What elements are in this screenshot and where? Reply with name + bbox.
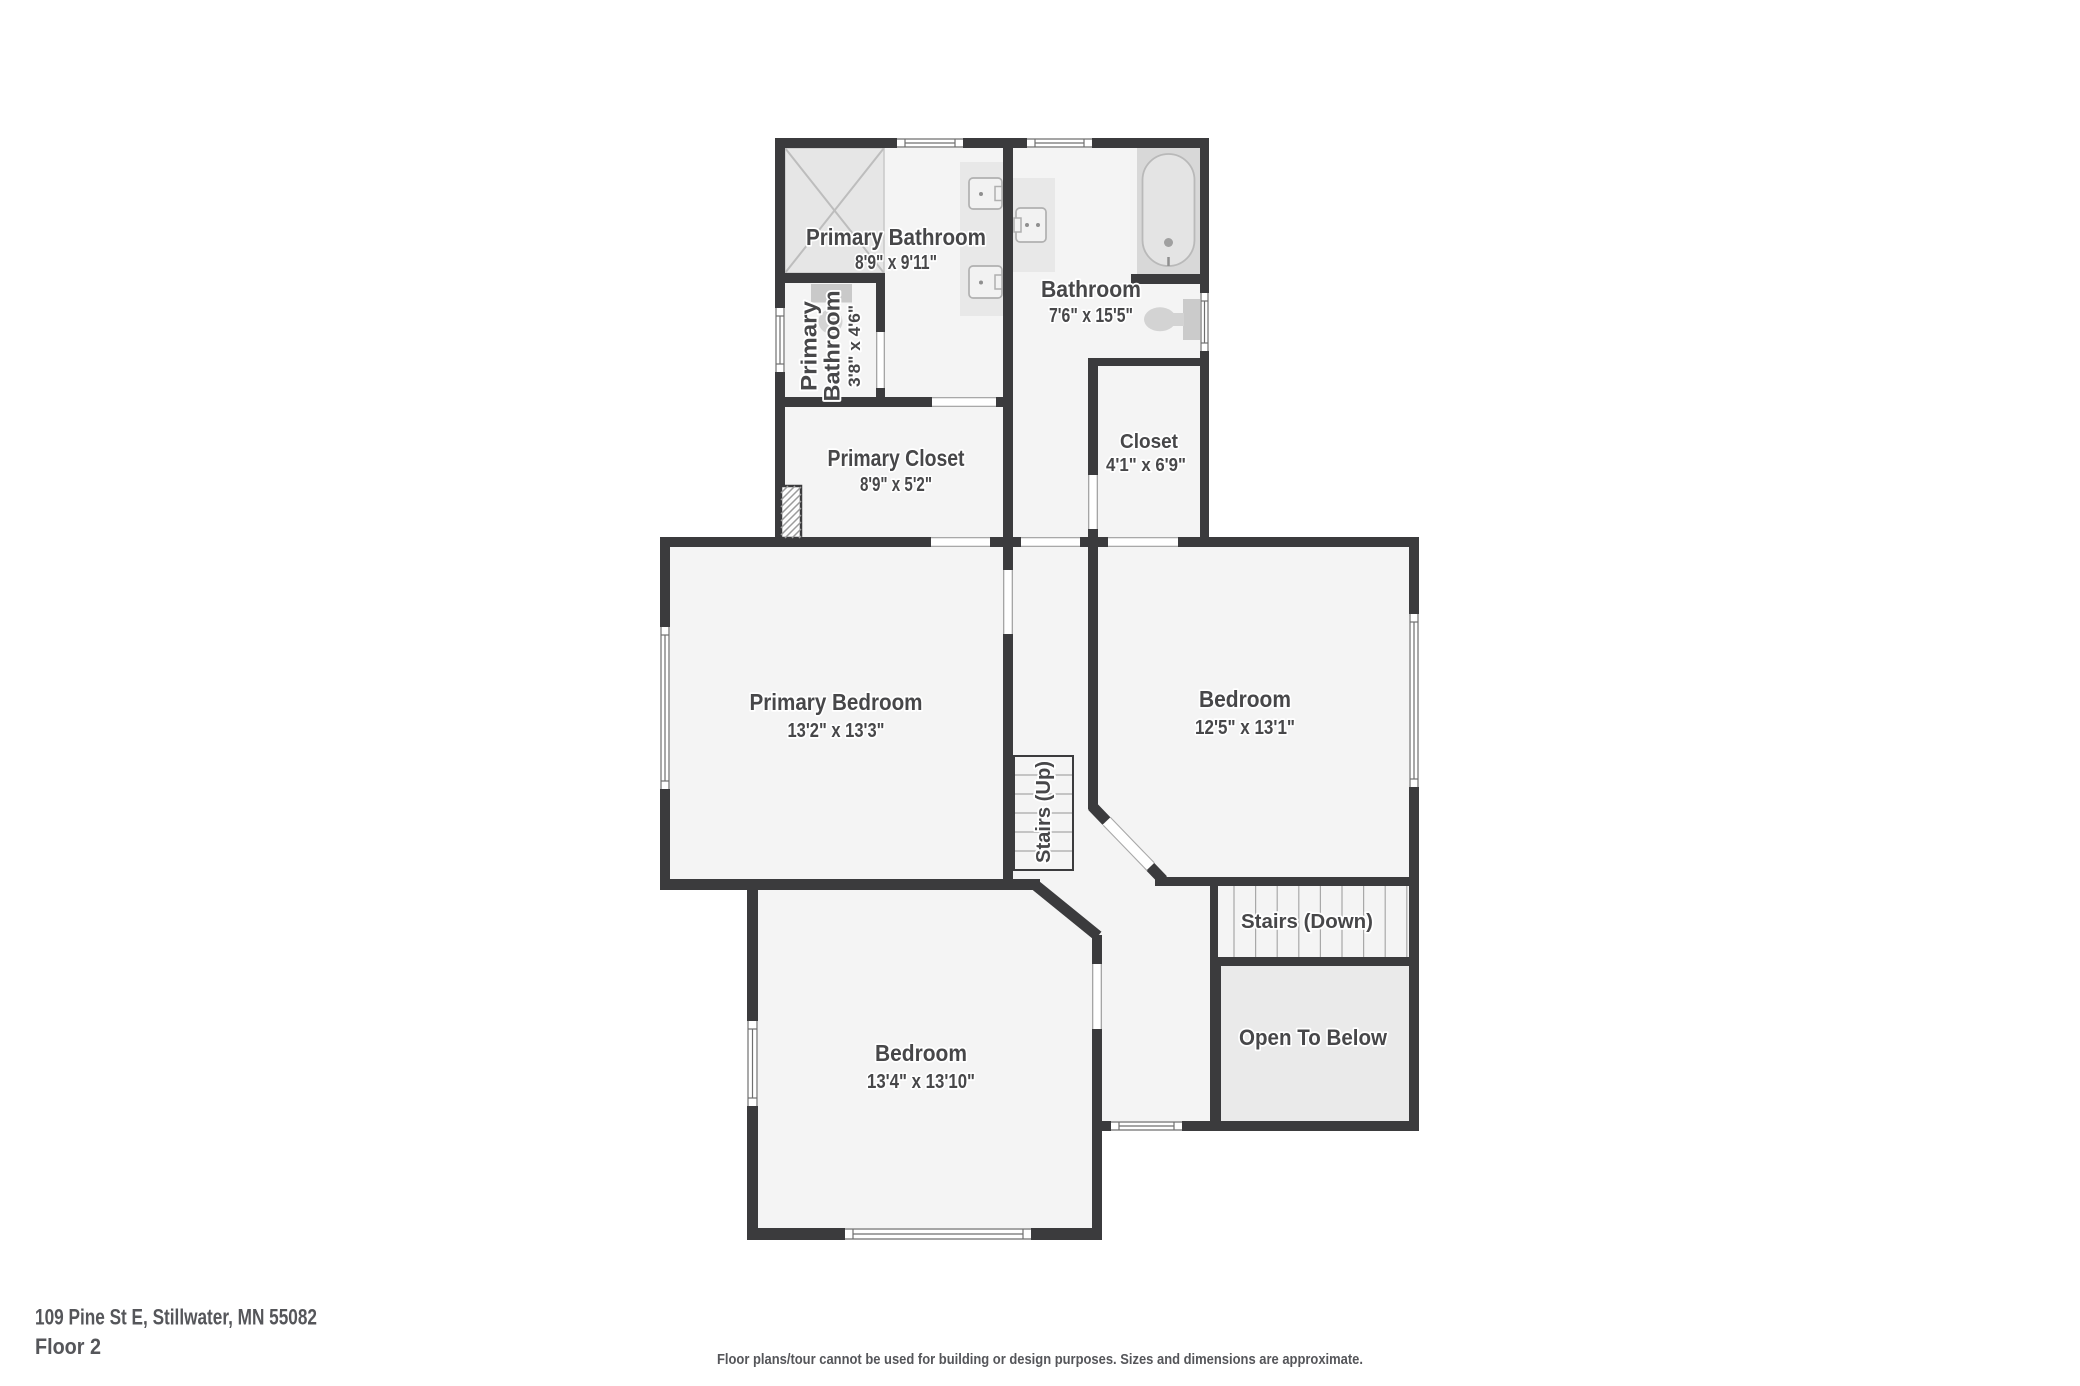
svg-text:109 Pine St E, Stillwater, MN: 109 Pine St E, Stillwater, MN 55082: [35, 1305, 317, 1330]
svg-text:Open To Below: Open To Below: [1239, 1025, 1388, 1050]
svg-text:Stairs (Up): Stairs (Up): [1033, 761, 1055, 863]
svg-text:12'5" x 13'1": 12'5" x 13'1": [1195, 717, 1295, 739]
svg-text:Primary Closet: Primary Closet: [828, 445, 965, 471]
svg-text:8'9" x 9'11": 8'9" x 9'11": [855, 252, 937, 274]
svg-text:Floor 2: Floor 2: [35, 1334, 101, 1359]
svg-text:Floor plans/tour cannot be use: Floor plans/tour cannot be used for buil…: [717, 1351, 1363, 1368]
svg-text:Primary Bedroom: Primary Bedroom: [750, 689, 923, 715]
svg-text:4'1" x 6'9": 4'1" x 6'9": [1106, 455, 1186, 475]
svg-text:Stairs (Down): Stairs (Down): [1241, 911, 1373, 933]
svg-text:13'2" x 13'3": 13'2" x 13'3": [788, 720, 885, 742]
svg-text:Primary: Primary: [797, 300, 822, 391]
svg-text:7'6" x 15'5": 7'6" x 15'5": [1049, 305, 1133, 327]
svg-text:Closet: Closet: [1120, 431, 1178, 453]
svg-text:Primary Bathroom: Primary Bathroom: [806, 224, 986, 250]
svg-text:Bathroom: Bathroom: [820, 291, 845, 402]
svg-text:Bathroom: Bathroom: [1041, 276, 1141, 302]
svg-text:13'4" x 13'10": 13'4" x 13'10": [867, 1071, 975, 1093]
svg-text:Bedroom: Bedroom: [875, 1040, 967, 1066]
svg-text:8'9" x 5'2": 8'9" x 5'2": [860, 474, 932, 496]
svg-text:3'8" x 4'6": 3'8" x 4'6": [845, 305, 864, 387]
svg-text:Bedroom: Bedroom: [1199, 686, 1291, 712]
